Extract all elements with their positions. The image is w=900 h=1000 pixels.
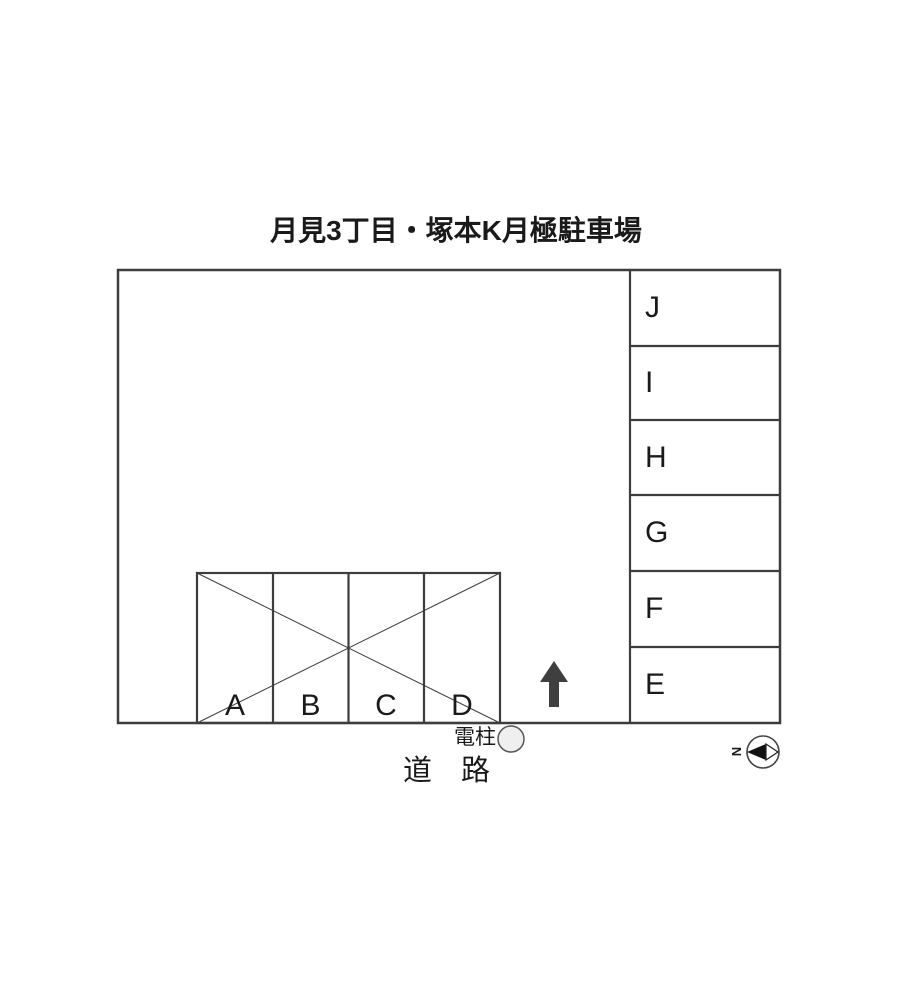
compass-icon	[747, 736, 779, 768]
space-label-i: I	[645, 368, 685, 398]
space-label-g: G	[645, 518, 685, 548]
space-label-e: E	[645, 670, 685, 700]
space-label-f: F	[645, 594, 685, 624]
lot-boundary	[118, 270, 780, 723]
parking-map-canvas: 月見3丁目・塚本K月極駐車場 J	[0, 0, 900, 1000]
road-label: 道 路	[403, 755, 490, 788]
up-arrow-icon	[540, 661, 568, 707]
utility-pole-label: 電柱	[454, 726, 496, 749]
space-label-j: J	[645, 293, 685, 323]
space-label-d: D	[424, 691, 500, 721]
space-label-a: A	[197, 691, 273, 721]
compass-north-label: N	[729, 744, 744, 759]
space-label-b: B	[273, 691, 348, 721]
lot-diagram	[0, 0, 900, 1000]
utility-pole-marker	[498, 726, 524, 752]
space-label-h: H	[645, 443, 685, 473]
space-label-c: C	[348, 691, 424, 721]
